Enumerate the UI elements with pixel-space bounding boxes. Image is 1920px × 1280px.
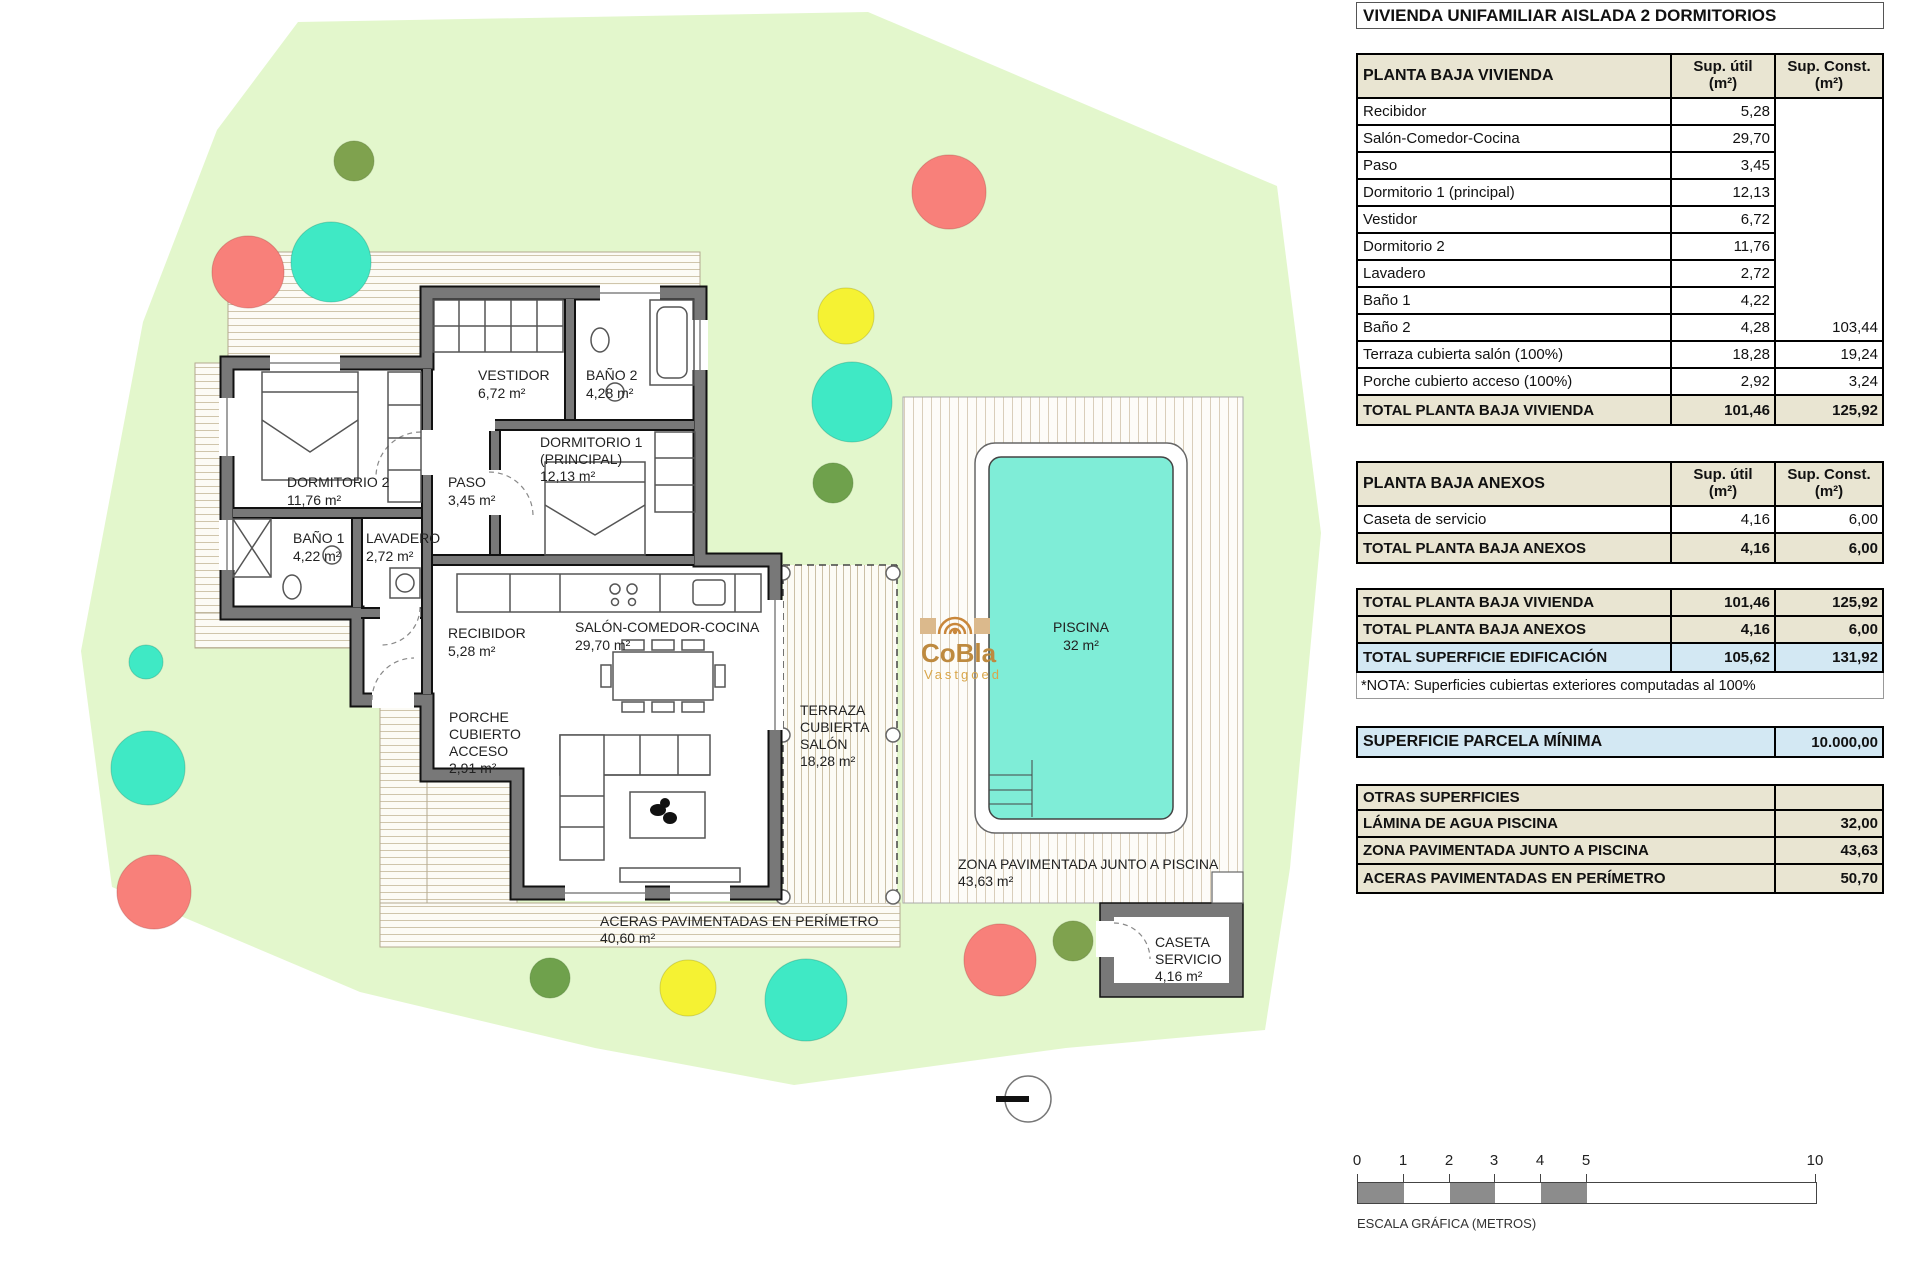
row-const <box>1776 261 1882 288</box>
label-caseta: CASETA <box>1155 934 1211 950</box>
label-aceras: ACERAS PAVIMENTADAS EN PERÍMETRO <box>600 913 879 929</box>
tree <box>111 731 185 805</box>
row-util: 4,16 <box>1672 507 1776 534</box>
svg-text:4,28 m²: 4,28 m² <box>586 385 634 401</box>
summary-const: 6,00 <box>1776 617 1882 644</box>
row-const: 6,00 <box>1776 507 1882 534</box>
svg-text:29,70 m²: 29,70 m² <box>575 637 631 653</box>
label-salon: SALÓN-COMEDOR-COCINA <box>575 619 760 635</box>
label-porche: PORCHE <box>449 709 509 725</box>
floor-plan-drawing: CoBla Vastgoed DORMITORIO 2 11,76 m² BAÑ… <box>0 0 1356 1280</box>
graphic-scale: 0 1 2 3 4 5 10 ESCALA GRÁFICA (METROS) <box>1345 1152 1835 1242</box>
scale-tick: 5 <box>1572 1152 1600 1169</box>
row-util: 11,76 <box>1672 234 1776 261</box>
scale-tick: 3 <box>1480 1152 1508 1169</box>
svg-text:11,76 m²: 11,76 m² <box>287 492 342 508</box>
summary-label: TOTAL SUPERFICIE EDIFICACIÓN <box>1358 644 1672 671</box>
row-const: 19,24 <box>1776 342 1882 369</box>
total-const: 6,00 <box>1776 534 1882 562</box>
svg-text:4,16 m²: 4,16 m² <box>1155 968 1203 984</box>
row-util: 12,13 <box>1672 180 1776 207</box>
row-const <box>1776 180 1882 207</box>
col-header-util: Sup. útil (m²) <box>1672 55 1776 99</box>
sheet-title: VIVIENDA UNIFAMILIAR AISLADA 2 DORMITORI… <box>1356 2 1884 29</box>
total-label: TOTAL PLANTA BAJA VIVIENDA <box>1358 396 1672 424</box>
table-header-empty <box>1776 786 1882 811</box>
parcela-value: 10.000,00 <box>1776 728 1882 756</box>
label-recibidor: RECIBIDOR <box>448 625 526 641</box>
tree <box>964 924 1036 996</box>
summary-const: 131,92 <box>1776 644 1882 671</box>
tree <box>129 645 163 679</box>
site-plan-sheet: CoBla Vastgoed DORMITORIO 2 11,76 m² BAÑ… <box>0 0 1920 1280</box>
tree <box>813 463 853 503</box>
label-dormitorio1: DORMITORIO 1 <box>540 434 643 450</box>
tree <box>212 236 284 308</box>
table-planta-baja-vivienda: PLANTA BAJA VIVIENDA Sup. útil (m²) Sup.… <box>1356 53 1884 426</box>
row-const <box>1776 153 1882 180</box>
summary-const: 125,92 <box>1776 590 1882 617</box>
row-label: Baño 1 <box>1358 288 1672 315</box>
row-const <box>1776 99 1882 126</box>
row-util: 6,72 <box>1672 207 1776 234</box>
row-const <box>1776 126 1882 153</box>
north-marker-icon <box>996 1076 1051 1122</box>
table-otras-superficies: OTRAS SUPERFICIES LÁMINA DE AGUA PISCINA… <box>1356 784 1884 894</box>
svg-text:3,45 m²: 3,45 m² <box>448 492 496 508</box>
tree <box>117 855 191 929</box>
label-bano1: BAÑO 1 <box>293 530 345 546</box>
label-terraza: TERRAZA <box>800 702 866 718</box>
svg-text:CUBIERTO: CUBIERTO <box>449 726 521 742</box>
label-bano2: BAÑO 2 <box>586 367 638 383</box>
scale-tick: 1 <box>1389 1152 1417 1169</box>
tree <box>1053 921 1093 961</box>
row-util: 5,28 <box>1672 99 1776 126</box>
row-const <box>1776 207 1882 234</box>
total-util: 4,16 <box>1672 534 1776 562</box>
row-label: Caseta de servicio <box>1358 507 1672 534</box>
row-label: Dormitorio 1 (principal) <box>1358 180 1672 207</box>
svg-text:(PRINCIPAL): (PRINCIPAL) <box>540 451 622 467</box>
row-label: Lavadero <box>1358 261 1672 288</box>
col-header-const: Sup. Const. (m²) <box>1776 463 1882 507</box>
svg-text:40,60 m²: 40,60 m² <box>600 930 656 946</box>
label-lavadero: LAVADERO <box>366 530 440 546</box>
summary-util: 4,16 <box>1672 617 1776 644</box>
svg-text:2,72 m²: 2,72 m² <box>366 548 414 564</box>
col-header-util: Sup. útil (m²) <box>1672 463 1776 507</box>
row-util: 18,28 <box>1672 342 1776 369</box>
svg-text:6,72 m²: 6,72 m² <box>478 385 526 401</box>
row-util: 3,45 <box>1672 153 1776 180</box>
table-totals: TOTAL PLANTA BAJA VIVIENDA 101,46 125,92… <box>1356 588 1884 673</box>
summary-util: 101,46 <box>1672 590 1776 617</box>
table-header: OTRAS SUPERFICIES <box>1358 786 1776 811</box>
tree <box>765 959 847 1041</box>
label-dormitorio2: DORMITORIO 2 <box>287 474 390 490</box>
row-label: Baño 2 <box>1358 315 1672 342</box>
area-tables-panel: VIVIENDA UNIFAMILIAR AISLADA 2 DORMITORI… <box>1356 0 1884 1280</box>
svg-text:32 m²: 32 m² <box>1063 637 1099 653</box>
tree <box>818 288 874 344</box>
label-vestidor: VESTIDOR <box>478 367 550 383</box>
label-piscina: PISCINA <box>1053 619 1110 635</box>
row-label: Dormitorio 2 <box>1358 234 1672 261</box>
row-const: 103,44 <box>1776 315 1882 342</box>
svg-text:2,91 m²: 2,91 m² <box>449 760 497 776</box>
row-const <box>1776 288 1882 315</box>
row-label: Vestidor <box>1358 207 1672 234</box>
svg-text:CUBIERTA: CUBIERTA <box>800 719 870 735</box>
table-parcela-minima: SUPERFICIE PARCELA MÍNIMA 10.000,00 <box>1356 726 1884 758</box>
scale-tick: 0 <box>1343 1152 1371 1169</box>
tree <box>912 155 986 229</box>
row-label: Salón-Comedor-Cocina <box>1358 126 1672 153</box>
scale-bar <box>1357 1182 1817 1204</box>
row-util: 4,28 <box>1672 315 1776 342</box>
row-const <box>1776 234 1882 261</box>
total-label: TOTAL PLANTA BAJA ANEXOS <box>1358 534 1672 562</box>
table-header: PLANTA BAJA VIVIENDA <box>1358 55 1672 99</box>
scale-tick: 4 <box>1526 1152 1554 1169</box>
row-label: ZONA PAVIMENTADA JUNTO A PISCINA <box>1358 838 1776 865</box>
svg-text:12,13 m²: 12,13 m² <box>540 468 596 484</box>
scale-tick: 2 <box>1435 1152 1463 1169</box>
label-paso: PASO <box>448 474 486 490</box>
col-header-const: Sup. Const. (m²) <box>1776 55 1882 99</box>
row-util: 2,92 <box>1672 369 1776 396</box>
svg-text:SERVICIO: SERVICIO <box>1155 951 1222 967</box>
tree <box>530 958 570 998</box>
row-const: 3,24 <box>1776 369 1882 396</box>
tree <box>291 222 371 302</box>
summary-label: TOTAL PLANTA BAJA ANEXOS <box>1358 617 1672 644</box>
tree <box>660 960 716 1016</box>
row-util: 2,72 <box>1672 261 1776 288</box>
row-value: 32,00 <box>1776 811 1882 838</box>
svg-text:43,63 m²: 43,63 m² <box>958 873 1014 889</box>
svg-text:5,28 m²: 5,28 m² <box>448 643 496 659</box>
watermark-sub: Vastgoed <box>924 667 1002 682</box>
row-label: LÁMINA DE AGUA PISCINA <box>1358 811 1776 838</box>
tree <box>812 362 892 442</box>
summary-label: TOTAL PLANTA BAJA VIVIENDA <box>1358 590 1672 617</box>
tree <box>334 141 374 181</box>
row-value: 50,70 <box>1776 865 1882 892</box>
row-label: ACERAS PAVIMENTADAS EN PERÍMETRO <box>1358 865 1776 892</box>
note: *NOTA: Superficies cubiertas exteriores … <box>1356 673 1884 699</box>
watermark-name: CoBla <box>921 638 997 668</box>
parcela-label: SUPERFICIE PARCELA MÍNIMA <box>1358 728 1776 756</box>
cobla-watermark-logo: CoBla Vastgoed <box>920 618 1002 682</box>
scale-caption: ESCALA GRÁFICA (METROS) <box>1357 1216 1536 1231</box>
svg-text:4,22 m²: 4,22 m² <box>293 548 341 564</box>
label-zona: ZONA PAVIMENTADA JUNTO A PISCINA <box>958 856 1219 872</box>
table-header: PLANTA BAJA ANEXOS <box>1358 463 1672 507</box>
row-util: 29,70 <box>1672 126 1776 153</box>
row-util: 4,22 <box>1672 288 1776 315</box>
row-value: 43,63 <box>1776 838 1882 865</box>
row-label: Paso <box>1358 153 1672 180</box>
svg-text:18,28 m²: 18,28 m² <box>800 753 856 769</box>
total-const: 125,92 <box>1776 396 1882 424</box>
svg-text:ACCESO: ACCESO <box>449 743 508 759</box>
table-planta-baja-anexos: PLANTA BAJA ANEXOS Sup. útil (m²) Sup. C… <box>1356 461 1884 564</box>
row-label: Recibidor <box>1358 99 1672 126</box>
svg-text:SALÓN: SALÓN <box>800 736 847 752</box>
total-util: 101,46 <box>1672 396 1776 424</box>
summary-util: 105,62 <box>1672 644 1776 671</box>
row-label: Porche cubierto acceso (100%) <box>1358 369 1672 396</box>
scale-tick: 10 <box>1801 1152 1829 1169</box>
row-label: Terraza cubierta salón (100%) <box>1358 342 1672 369</box>
